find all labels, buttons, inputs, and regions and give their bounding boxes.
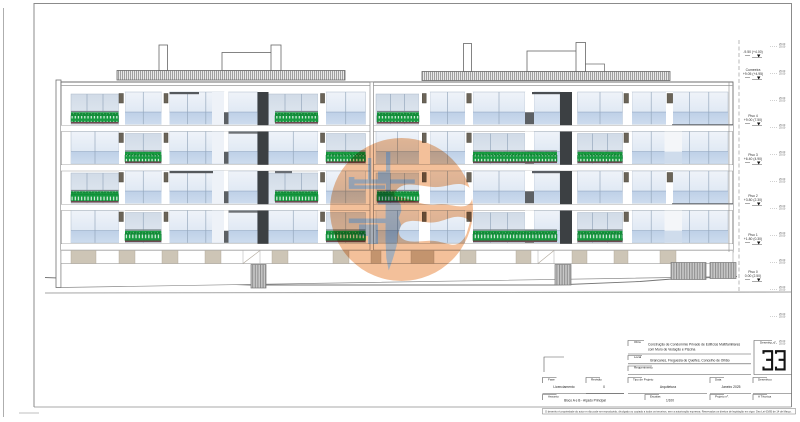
svg-text:25.00: 25.00	[779, 73, 786, 76]
svg-text:25.00: 25.00	[779, 154, 786, 157]
svg-text:Construção de Condomínio Priva: Construção de Condomínio Privado de Edif…	[648, 343, 741, 347]
svg-text:Requerimento: Requerimento	[634, 366, 653, 370]
svg-text:25.00: 25.00	[779, 235, 786, 238]
svg-text:25.00: 25.00	[779, 289, 786, 292]
svg-text:O desenho é propriedade do aut: O desenho é propriedade do autor e não p…	[545, 410, 792, 414]
svg-text:-9.50 (+4.00): -9.50 (+4.00)	[743, 50, 763, 54]
svg-text:25.00: 25.00	[779, 262, 786, 265]
svg-text:Arquitetura: Arquitetura	[660, 385, 676, 389]
svg-text:25.00: 25.00	[779, 181, 786, 184]
svg-text:Bloco A e B - Alçado Principal: Bloco A e B - Alçado Principal	[564, 399, 606, 403]
svg-text:+6.40 (4.90): +6.40 (4.90)	[744, 157, 762, 161]
svg-text:Escalas: Escalas	[650, 395, 661, 399]
svg-text:+3.80 (2.30): +3.80 (2.30)	[744, 198, 762, 202]
svg-text:+9.00 (7.50): +9.00 (7.50)	[744, 118, 762, 122]
svg-text:25.00: 25.00	[779, 316, 786, 319]
svg-text:com Muro de Vedação e Piscina: com Muro de Vedação e Piscina	[648, 348, 695, 352]
svg-text:+9.05 (+4.95): +9.05 (+4.95)	[743, 72, 763, 76]
svg-text:Desenho nº.: Desenho nº.	[760, 341, 777, 345]
svg-text:0.00 (2.50): 0.00 (2.50)	[745, 274, 761, 278]
svg-text:Fase: Fase	[548, 378, 555, 382]
svg-text:Data: Data	[715, 378, 722, 382]
svg-text:Licenciamento: Licenciamento	[553, 385, 574, 389]
svg-text:Janeiro 2025: Janeiro 2025	[721, 385, 740, 389]
svg-text:Assunto: Assunto	[548, 395, 559, 399]
svg-text:Desenhou: Desenhou	[758, 378, 772, 382]
svg-text:A Técnica: A Técnica	[758, 395, 771, 399]
svg-text:Obra: Obra	[634, 340, 641, 344]
svg-text:Tipo de Projeto: Tipo de Projeto	[633, 378, 654, 382]
svg-text:25.00: 25.00	[779, 208, 786, 211]
svg-text:Projeto nº.: Projeto nº.	[715, 395, 729, 399]
svg-text:Local: Local	[634, 355, 642, 359]
svg-text:25.00: 25.00	[779, 127, 786, 130]
svg-text:25.00: 25.00	[779, 343, 786, 346]
svg-text:25.00: 25.00	[779, 100, 786, 103]
svg-text:Revisão: Revisão	[591, 378, 602, 382]
svg-text:25.00: 25.00	[779, 46, 786, 49]
svg-text:Brancanes, Freguesia de Quelfe: Brancanes, Freguesia de Quelfes, Concelh…	[650, 359, 729, 363]
svg-text:1/100: 1/100	[666, 399, 674, 403]
svg-text:0: 0	[603, 385, 605, 389]
svg-text:+1.80 (0.30): +1.80 (0.30)	[744, 237, 762, 241]
